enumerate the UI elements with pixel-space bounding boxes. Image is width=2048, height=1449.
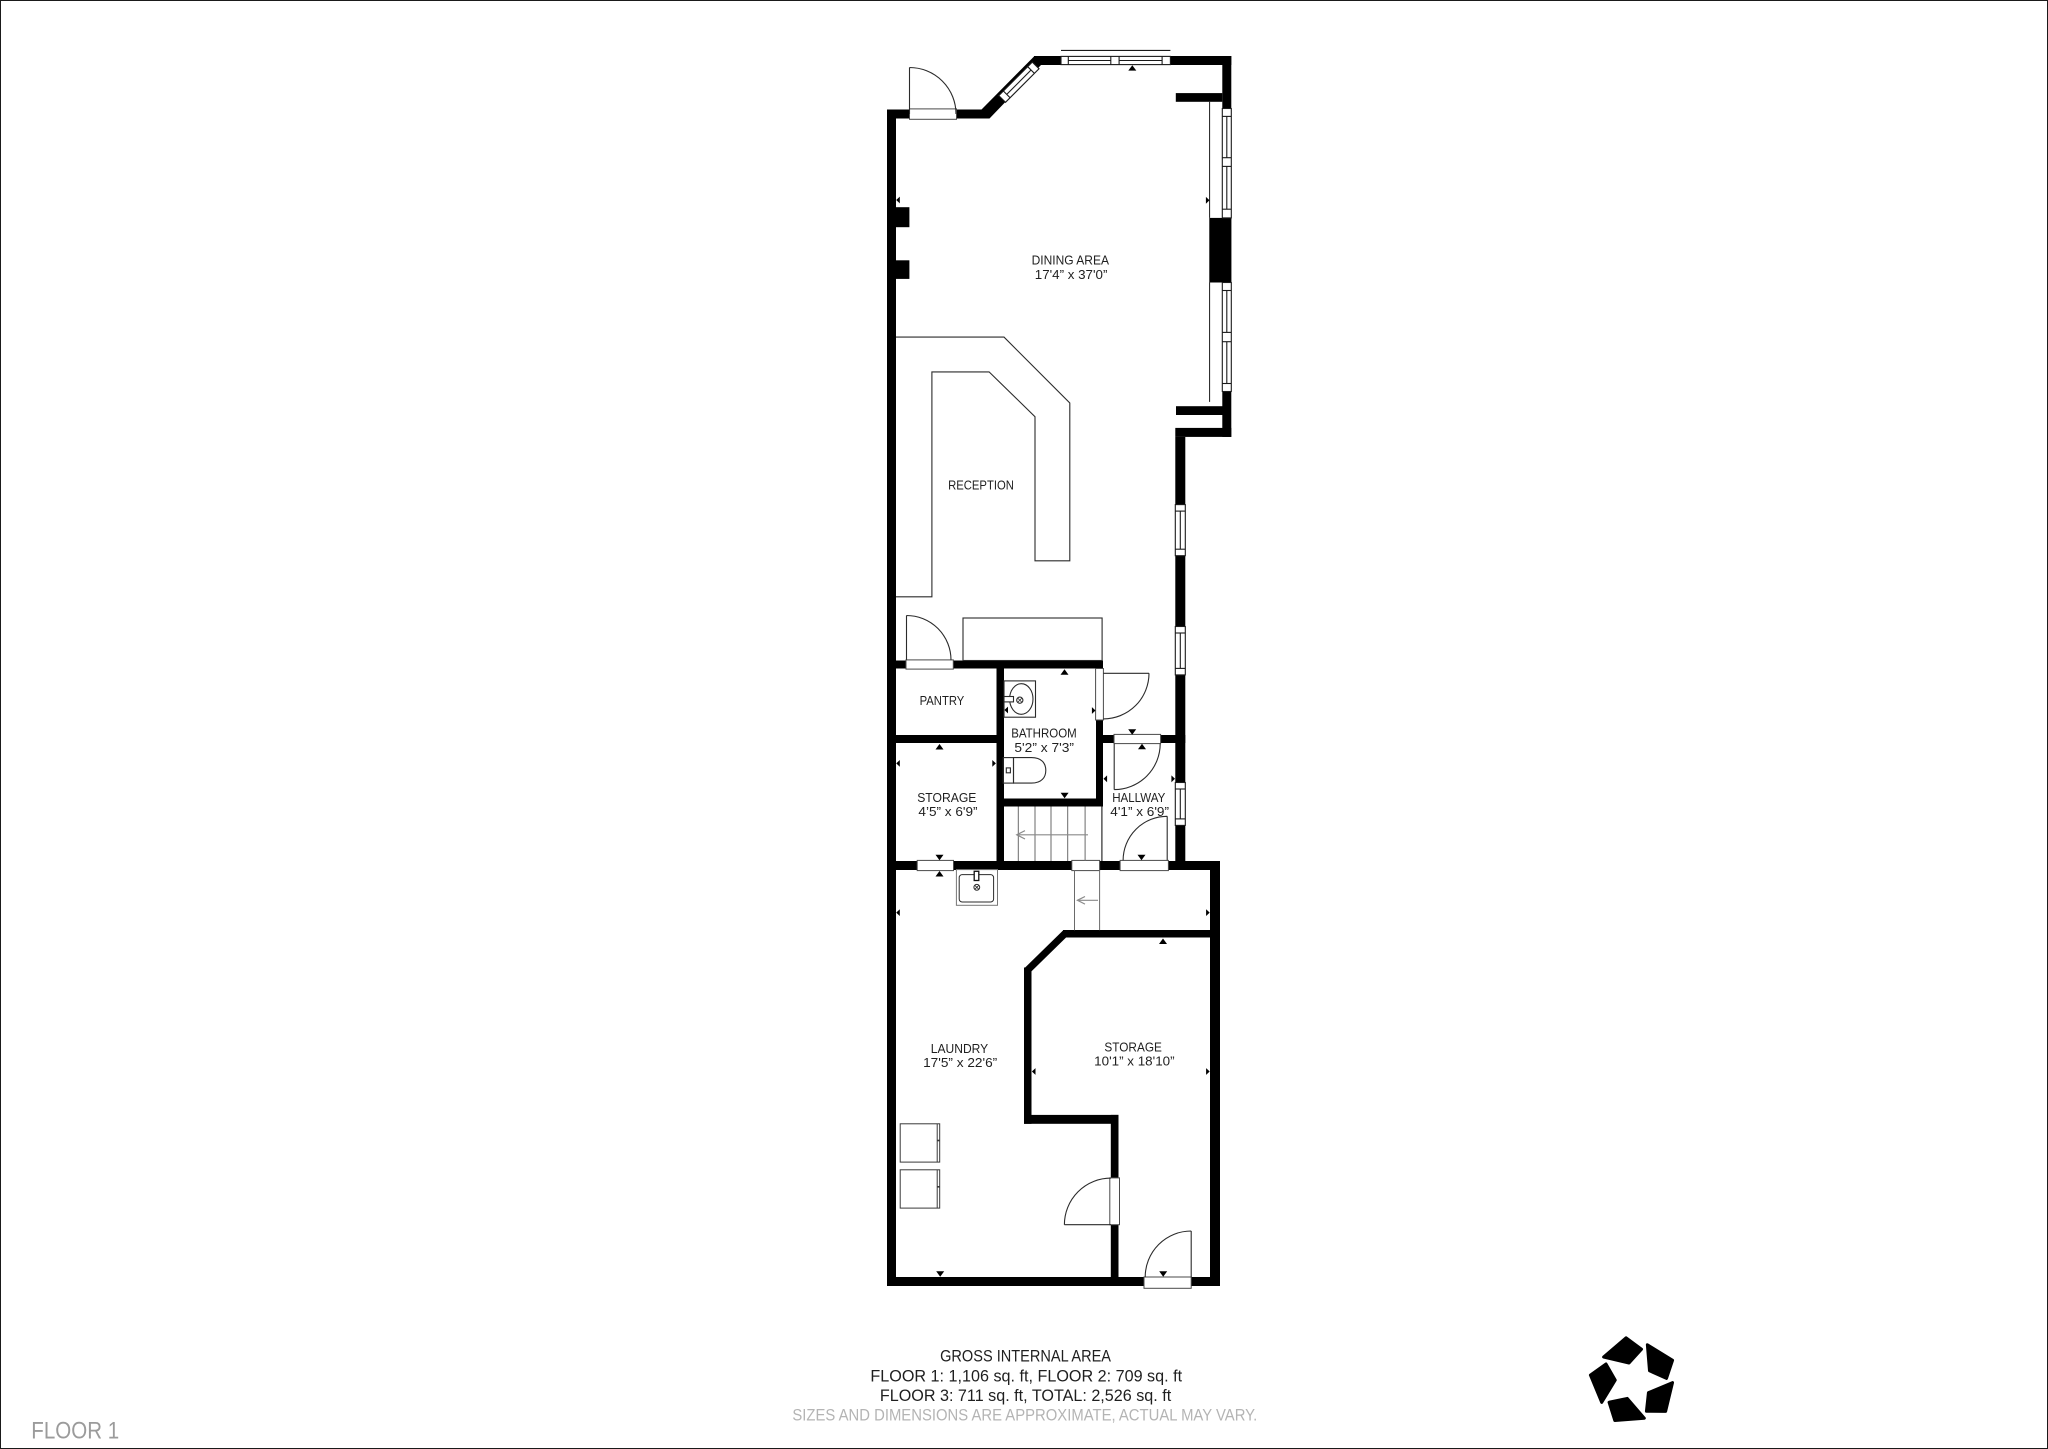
svg-text:RECEPTION: RECEPTION bbox=[948, 479, 1014, 493]
svg-text:4’5” x 6'9”: 4’5” x 6'9” bbox=[918, 805, 977, 819]
svg-text:10'1” x 18'10”: 10'1” x 18'10” bbox=[1094, 1055, 1174, 1069]
svg-text:DINING AREA: DINING AREA bbox=[1032, 254, 1110, 268]
svg-text:STORAGE: STORAGE bbox=[1104, 1041, 1162, 1055]
svg-text:STORAGE: STORAGE bbox=[917, 791, 976, 805]
svg-text:HALLWAY: HALLWAY bbox=[1112, 791, 1166, 805]
svg-text:FLOOR 3: 711 sq. ft, TOTAL: 2,: FLOOR 3: 711 sq. ft, TOTAL: 2,526 sq. ft bbox=[880, 1387, 1172, 1405]
svg-text:GROSS INTERNAL AREA: GROSS INTERNAL AREA bbox=[940, 1348, 1111, 1366]
svg-text:BATHROOM: BATHROOM bbox=[1011, 727, 1076, 741]
svg-text:LAUNDRY: LAUNDRY bbox=[931, 1042, 989, 1056]
svg-text:4'1” x 6'9”: 4'1” x 6'9” bbox=[1110, 805, 1169, 819]
svg-text:FLOOR 1: FLOOR 1 bbox=[31, 1417, 119, 1444]
svg-text:17'4” x 37'0”: 17'4” x 37'0” bbox=[1035, 268, 1108, 282]
svg-text:5'2” x 7'3”: 5'2” x 7'3” bbox=[1014, 741, 1074, 755]
svg-text:FLOOR 1: 1,106 sq. ft, FLOOR 2: FLOOR 1: 1,106 sq. ft, FLOOR 2: 709 sq. … bbox=[870, 1368, 1182, 1386]
svg-text:PANTRY: PANTRY bbox=[920, 694, 965, 708]
svg-text:17'5” x 22'6”: 17'5” x 22'6” bbox=[923, 1056, 997, 1070]
svg-text:SIZES AND DIMENSIONS ARE APPRO: SIZES AND DIMENSIONS ARE APPROXIMATE, AC… bbox=[792, 1406, 1257, 1424]
